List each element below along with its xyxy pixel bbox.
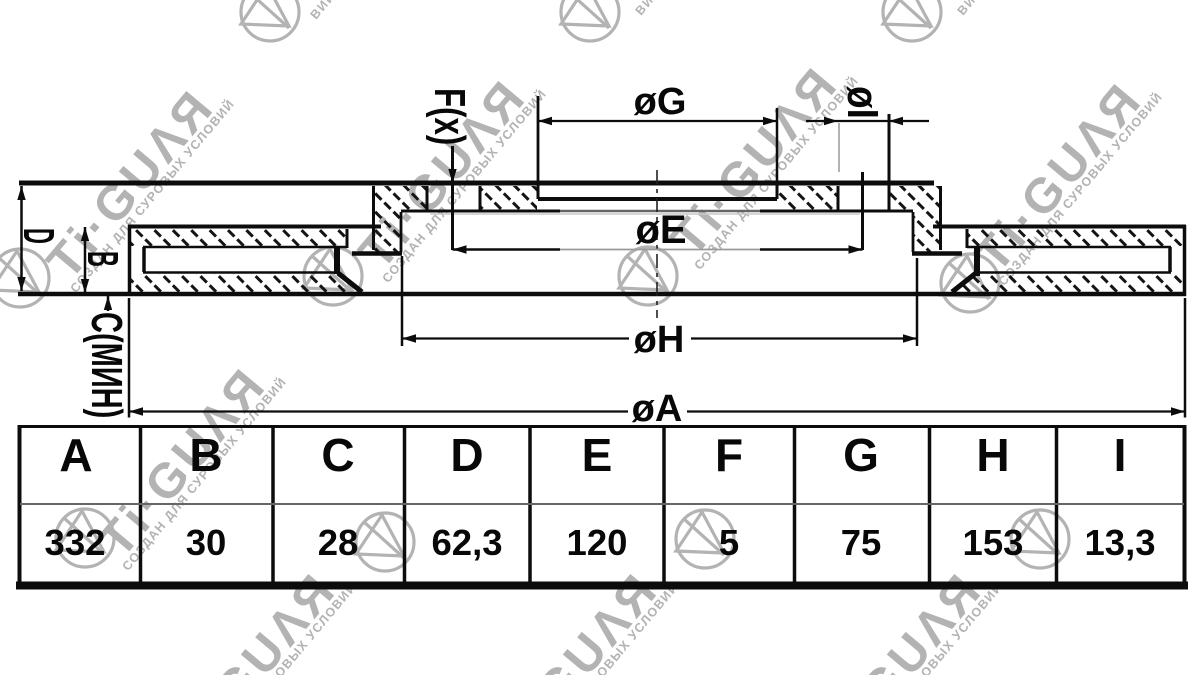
svg-text:153: 153 <box>963 522 1024 563</box>
svg-text:G: G <box>843 429 879 481</box>
svg-text:øG: øG <box>634 81 687 123</box>
svg-text:F(x): F(x) <box>425 88 475 145</box>
svg-text:C: C <box>321 429 354 481</box>
svg-text:62,3: 62,3 <box>431 522 502 563</box>
svg-text:B: B <box>189 429 222 481</box>
svg-text:øE: øE <box>635 208 686 252</box>
svg-text:С(МИН): С(МИН) <box>83 312 133 418</box>
svg-text:D: D <box>450 429 483 481</box>
svg-text:øA: øA <box>632 388 683 430</box>
svg-text:Ti·GUΛЯ: Ti·GUΛЯ <box>661 56 849 266</box>
svg-text:D: D <box>14 228 62 244</box>
svg-text:B: B <box>78 251 126 267</box>
svg-text:332: 332 <box>45 522 106 563</box>
svg-text:Ti·GUΛЯ: Ti·GUΛЯ <box>965 72 1153 282</box>
svg-text:75: 75 <box>841 522 882 563</box>
svg-text:E: E <box>582 429 613 481</box>
svg-text:ВИЙ: ВИЙ <box>307 0 339 22</box>
svg-text:30: 30 <box>186 522 227 563</box>
svg-text:H: H <box>976 429 1009 481</box>
svg-text:ВИЙ: ВИЙ <box>954 0 986 18</box>
svg-text:28: 28 <box>318 522 359 563</box>
svg-text:F: F <box>715 429 743 481</box>
svg-text:øI: øI <box>838 86 888 119</box>
svg-text:ВИЙ: ВИЙ <box>632 0 664 18</box>
svg-text:120: 120 <box>567 522 628 563</box>
svg-text:I: I <box>1114 429 1127 481</box>
svg-text:13,3: 13,3 <box>1084 522 1155 563</box>
svg-text:5: 5 <box>719 522 739 563</box>
svg-text:A: A <box>59 429 92 481</box>
svg-text:øH: øH <box>634 319 685 361</box>
